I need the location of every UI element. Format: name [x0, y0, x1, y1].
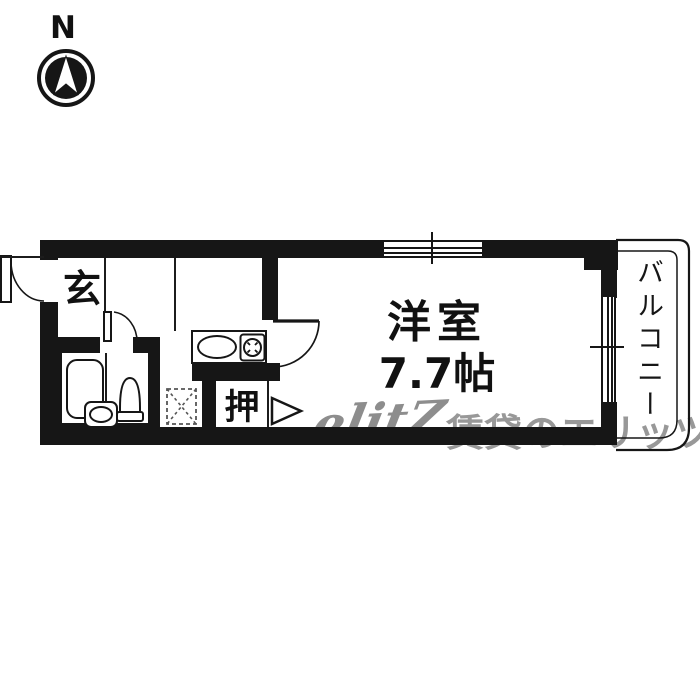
bath-partition-line	[105, 353, 107, 403]
compass-icon	[35, 47, 97, 109]
window-balcony	[601, 297, 616, 402]
wall-closet-left	[202, 381, 216, 427]
wall-room-divider	[262, 258, 278, 320]
compass-north-label: N	[50, 10, 76, 46]
closet-label: 押	[216, 381, 268, 427]
window-balcony-tick	[590, 346, 624, 348]
balcony-label: バルコニー	[628, 258, 667, 433]
window-top	[384, 240, 482, 258]
stove-burner-icon	[239, 333, 267, 363]
hall-kitchen-divider-line	[174, 258, 176, 331]
kitchen-sink	[197, 335, 237, 359]
washbasin-bowl	[89, 406, 113, 423]
entrance-label: 玄	[63, 258, 101, 313]
bathroom-door-arc	[100, 306, 145, 348]
window-top-tick	[431, 232, 433, 264]
closet-door-triangle	[269, 394, 305, 428]
room-area-label: 7.7帖	[357, 346, 517, 394]
washer-space-icon	[165, 387, 199, 427]
wall-top	[40, 240, 618, 258]
room-door	[265, 313, 327, 371]
wall-bottom	[40, 427, 617, 445]
entrance-door-arc	[0, 253, 52, 307]
floorplan-page: elitZ 賃貸のエリッツ	[0, 0, 700, 700]
washbasin-icon	[84, 401, 118, 428]
room-label: 洋室	[357, 294, 517, 342]
